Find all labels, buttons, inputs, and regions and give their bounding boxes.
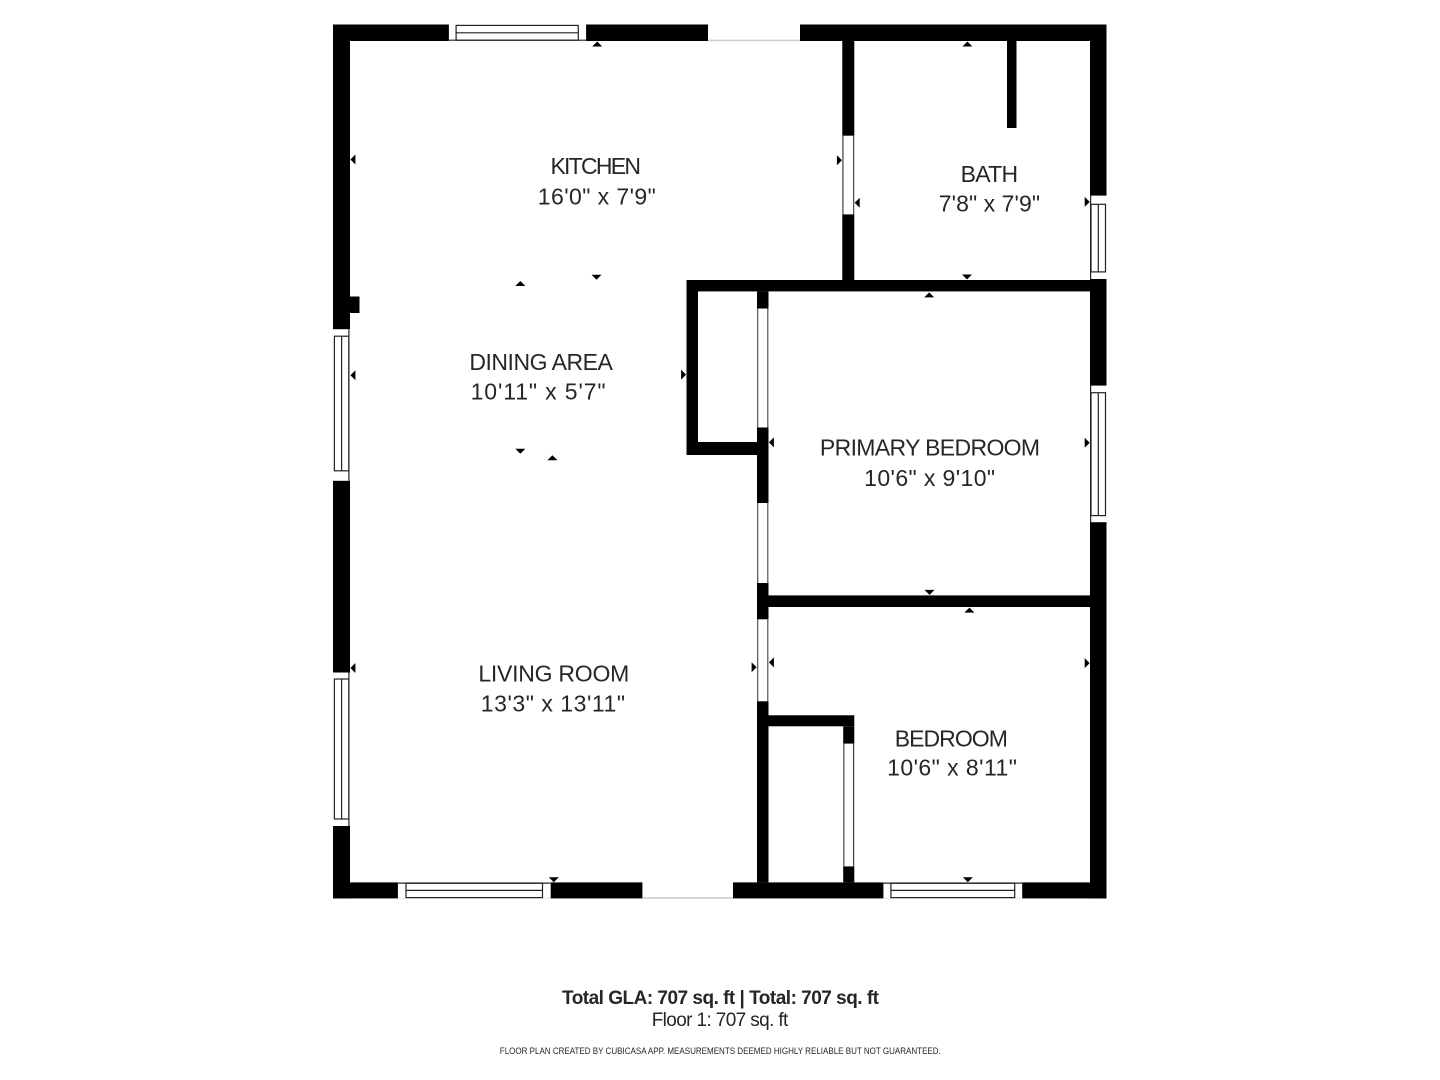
svg-text:7'8" x 7'9": 7'8" x 7'9" xyxy=(939,190,1040,216)
svg-text:FLOOR PLAN CREATED BY CUBICASA: FLOOR PLAN CREATED BY CUBICASA APP. MEAS… xyxy=(500,1046,941,1056)
svg-text:BEDROOM: BEDROOM xyxy=(895,725,1008,751)
svg-text:LIVING ROOM: LIVING ROOM xyxy=(478,661,629,687)
svg-text:16'0" x 7'9": 16'0" x 7'9" xyxy=(538,183,656,209)
svg-text:Floor 1: 707 sq. ft: Floor 1: 707 sq. ft xyxy=(652,1010,789,1031)
svg-text:DINING AREA: DINING AREA xyxy=(469,349,613,375)
svg-text:10'6" x 9'10": 10'6" x 9'10" xyxy=(864,465,995,491)
svg-text:13'3" x 13'11": 13'3" x 13'11" xyxy=(481,691,625,717)
svg-text:Total GLA: 707 sq. ft | Total:: Total GLA: 707 sq. ft | Total: 707 sq. f… xyxy=(562,988,880,1009)
svg-text:10'6" x 8'11": 10'6" x 8'11" xyxy=(887,755,1017,781)
svg-text:10'11" x 5'7": 10'11" x 5'7" xyxy=(471,378,606,404)
svg-text:KITCHEN: KITCHEN xyxy=(550,153,641,179)
svg-text:BATH: BATH xyxy=(961,161,1019,187)
svg-text:PRIMARY BEDROOM: PRIMARY BEDROOM xyxy=(820,434,1040,460)
